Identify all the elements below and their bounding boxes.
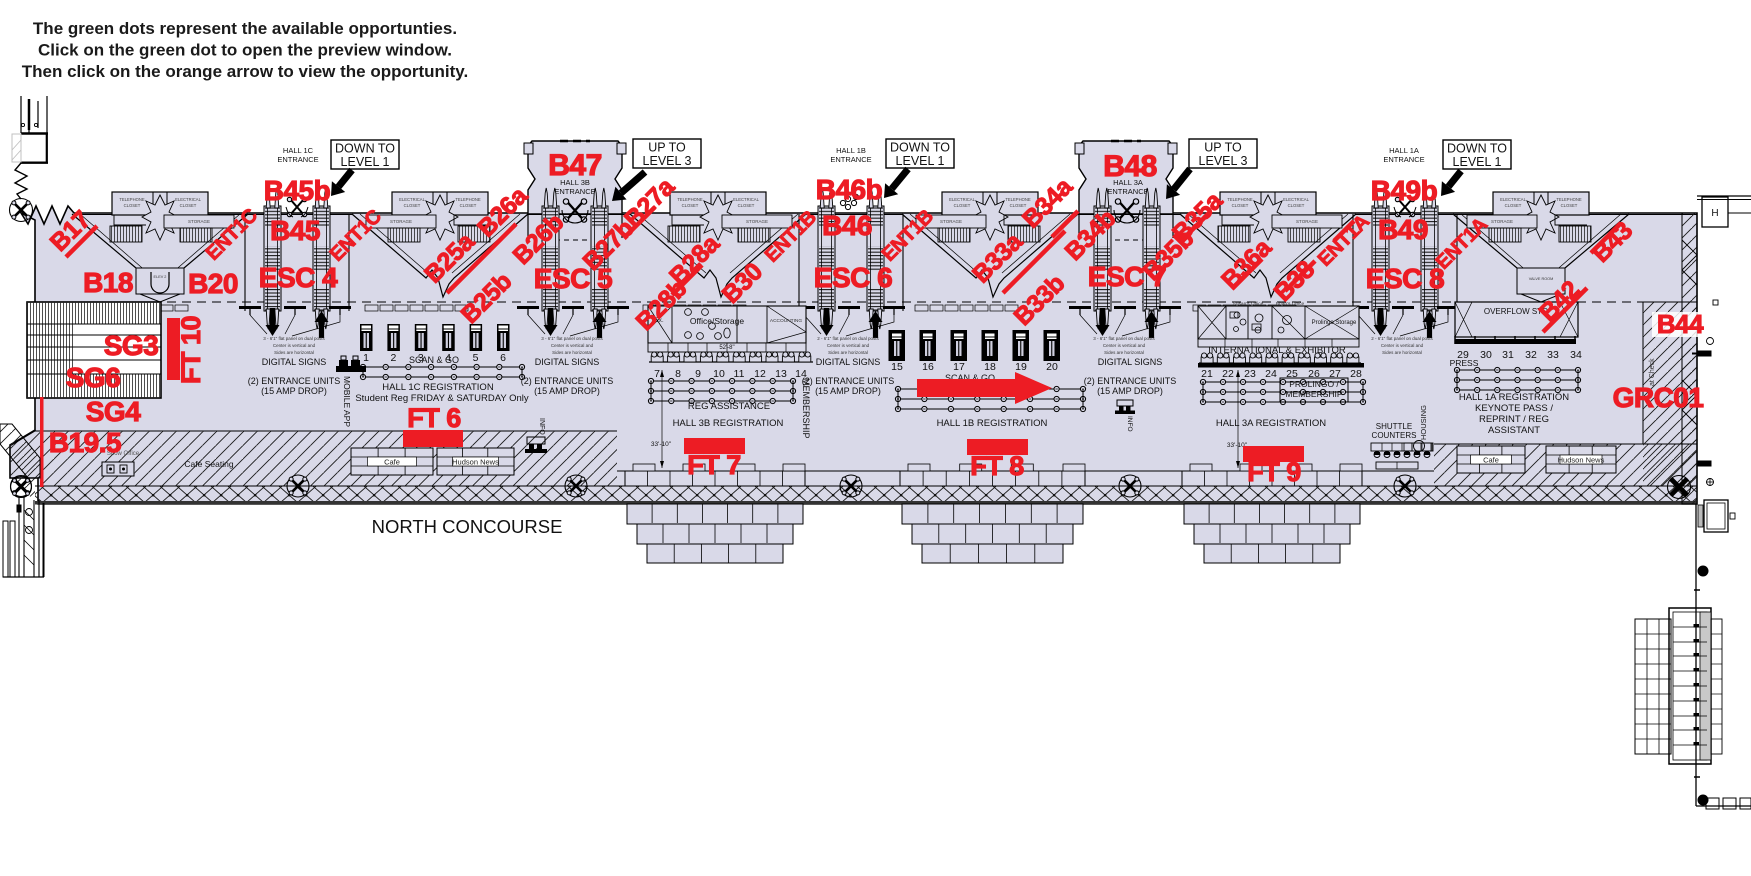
svg-text:ENTRANCE: ENTRANCE (1383, 155, 1424, 164)
svg-text:ELECTRICAL: ELECTRICAL (1500, 197, 1527, 202)
svg-text:19: 19 (1015, 361, 1027, 373)
svg-text:NORTH CONCOURSE: NORTH CONCOURSE (372, 516, 563, 537)
svg-text:Cafe: Cafe (384, 458, 400, 467)
svg-text:Susan's Office: Susan's Office (1233, 301, 1264, 307)
svg-text:Sides are horizontal: Sides are horizontal (828, 350, 868, 355)
svg-text:ESC 6: ESC 6 (814, 262, 892, 293)
svg-text:REG ASSISTANCE: REG ASSISTANCE (688, 401, 770, 412)
svg-text:H: H (1711, 208, 1718, 219)
svg-text:20: 20 (1046, 361, 1058, 373)
svg-text:MOBILE APP: MOBILE APP (342, 376, 352, 427)
svg-text:Center is vertical and: Center is vertical and (827, 343, 870, 348)
svg-text:16: 16 (922, 361, 934, 373)
svg-text:at Check: at Check (1649, 358, 1656, 386)
svg-text:(2) ENTRANCE UNITS: (2) ENTRANCE UNITS (1084, 376, 1177, 386)
svg-text:22: 22 (1222, 368, 1234, 380)
svg-text:Center is vertical and: Center is vertical and (1381, 343, 1424, 348)
svg-text:Sides are horizontal: Sides are horizontal (274, 350, 314, 355)
svg-text:B49b: B49b (1371, 175, 1437, 206)
svg-text:DOWN TO: DOWN TO (890, 141, 950, 155)
svg-text:Office/Storage: Office/Storage (690, 316, 744, 326)
svg-text:KEYNOTE PASS /: KEYNOTE PASS / (1475, 403, 1553, 414)
svg-text:Cafe: Cafe (1483, 456, 1499, 465)
svg-text:STORAGE: STORAGE (746, 219, 768, 224)
svg-text:B48: B48 (1103, 150, 1157, 183)
svg-text:HALL 1A REGISTRATION: HALL 1A REGISTRATION (1459, 392, 1569, 403)
svg-text:LEVEL 1: LEVEL 1 (896, 154, 945, 168)
svg-text:9: 9 (695, 368, 701, 380)
svg-text:FT 7: FT 7 (687, 450, 741, 480)
svg-text:TELEPHONE: TELEPHONE (1005, 197, 1031, 202)
svg-text:3 - 6'1" flat panel on dual po: 3 - 6'1" flat panel on dual posts (1093, 336, 1155, 341)
svg-text:CLOSET: CLOSET (954, 203, 971, 208)
svg-text:PROLINGO /: PROLINGO / (1289, 379, 1339, 389)
svg-text:CLOSET: CLOSET (180, 203, 197, 208)
svg-text:SCAN & GO: SCAN & GO (409, 355, 459, 365)
svg-text:Click on the green dot to open: Click on the green dot to open the previ… (38, 41, 452, 60)
svg-text:HALL 1A: HALL 1A (1389, 146, 1419, 155)
svg-text:HALL 1C REGISTRATION: HALL 1C REGISTRATION (382, 382, 494, 393)
svg-text:ESC 4: ESC 4 (259, 262, 338, 293)
svg-text:TELEPHONE: TELEPHONE (455, 197, 481, 202)
svg-text:B47: B47 (548, 149, 602, 182)
svg-text:Center is vertical and: Center is vertical and (1103, 343, 1146, 348)
svg-text:7: 7 (654, 368, 660, 380)
svg-text:12: 12 (754, 368, 766, 380)
svg-text:2: 2 (390, 352, 396, 364)
svg-text:LEVEL 3: LEVEL 3 (643, 154, 692, 168)
svg-text:LEVEL 3: LEVEL 3 (1199, 154, 1248, 168)
svg-text:TELEPHONE: TELEPHONE (119, 197, 145, 202)
svg-text:CLOSET: CLOSET (1505, 203, 1522, 208)
svg-text:HOUSING: HOUSING (1419, 405, 1428, 440)
svg-text:ELEV 2: ELEV 2 (154, 275, 167, 279)
svg-text:TELEPHONE: TELEPHONE (1227, 197, 1253, 202)
svg-text:FT 9: FT 9 (1247, 457, 1301, 487)
svg-text:ELECTRICAL: ELECTRICAL (949, 197, 976, 202)
svg-text:ASSISTANT: ASSISTANT (1488, 425, 1540, 436)
svg-text:17: 17 (953, 361, 965, 373)
svg-text:ELECTRICAL: ELECTRICAL (1283, 197, 1310, 202)
svg-text:SG4: SG4 (86, 396, 141, 427)
svg-text:ESC 8: ESC 8 (1366, 263, 1444, 294)
svg-text:23: 23 (1244, 368, 1256, 380)
svg-text:B49: B49 (1378, 214, 1428, 245)
svg-text:3 - 6'1" flat panel on dual po: 3 - 6'1" flat panel on dual posts (263, 336, 325, 341)
svg-text:2 - 6'1" flat panel on dual po: 2 - 6'1" flat panel on dual posts (817, 336, 879, 341)
svg-text:ENTRANCE: ENTRANCE (1107, 187, 1148, 196)
svg-text:Hudson News: Hudson News (1558, 456, 1605, 465)
svg-text:(15 AMP DROP): (15 AMP DROP) (534, 386, 600, 396)
svg-text:STORAGE: STORAGE (390, 219, 412, 224)
svg-text:STORAGE: STORAGE (1491, 219, 1513, 224)
svg-text:COUNTERS: COUNTERS (1372, 431, 1417, 440)
svg-text:Sides are horizontal: Sides are horizontal (552, 350, 592, 355)
svg-text:21: 21 (1201, 368, 1213, 380)
svg-text:6: 6 (500, 352, 506, 364)
svg-text:HALL 1B: HALL 1B (836, 146, 866, 155)
svg-text:Center is vertical and: Center is vertical and (551, 343, 594, 348)
svg-text:TELEPHONE: TELEPHONE (1556, 197, 1582, 202)
svg-text:Prolingo Storage: Prolingo Storage (1312, 320, 1357, 326)
svg-text:PRESS: PRESS (1450, 358, 1479, 368)
svg-text:SG3: SG3 (104, 330, 159, 361)
svg-text:33: 33 (1547, 349, 1559, 361)
svg-text:3 - 6'1" flat panel on dual po: 3 - 6'1" flat panel on dual posts (541, 336, 603, 341)
svg-text:13: 13 (775, 368, 787, 380)
svg-text:(2) ENTRANCE UNITS: (2) ENTRANCE UNITS (248, 376, 341, 386)
svg-text:52'-8": 52'-8" (719, 345, 734, 351)
svg-text:DIGITAL SIGNS: DIGITAL SIGNS (535, 357, 600, 367)
svg-text:CLOSET: CLOSET (682, 203, 699, 208)
svg-text:DOWN TO: DOWN TO (1447, 142, 1507, 156)
svg-text:28: 28 (1350, 368, 1362, 380)
svg-text:31: 31 (1502, 349, 1514, 361)
svg-text:GRC01: GRC01 (1613, 382, 1704, 413)
svg-text:DIGITAL SIGNS: DIGITAL SIGNS (262, 357, 327, 367)
svg-text:ENTRANCE: ENTRANCE (277, 155, 318, 164)
svg-text:CLOSET: CLOSET (1288, 203, 1305, 208)
svg-text:MEMBERSHIP: MEMBERSHIP (1285, 389, 1342, 399)
svg-text:B46b: B46b (816, 174, 882, 205)
svg-text:FT 10: FT 10 (176, 316, 206, 384)
svg-text:30: 30 (1480, 349, 1492, 361)
svg-text:UP TO: UP TO (1204, 141, 1242, 155)
svg-text:Center is vertical and: Center is vertical and (273, 343, 316, 348)
svg-text:FT 8: FT 8 (970, 451, 1024, 481)
svg-text:B19.5: B19.5 (49, 427, 121, 458)
svg-text:B46: B46 (822, 210, 872, 241)
svg-text:LEVEL 1: LEVEL 1 (1453, 155, 1502, 169)
svg-text:Cafe Seating: Cafe Seating (184, 459, 233, 469)
svg-text:HALL 3A REGISTRATION: HALL 3A REGISTRATION (1216, 418, 1326, 429)
svg-text:REPRINT / REG: REPRINT / REG (1479, 414, 1549, 425)
svg-text:B18: B18 (83, 267, 133, 298)
svg-text:34: 34 (1570, 349, 1582, 361)
svg-text:(15 AMP DROP): (15 AMP DROP) (261, 386, 327, 396)
svg-text:DIGITAL SIGNS: DIGITAL SIGNS (816, 357, 881, 367)
svg-text:SG6: SG6 (66, 362, 121, 393)
svg-text:MEMBERSHIP: MEMBERSHIP (801, 378, 811, 439)
svg-text:Then click on the orange arrow: Then click on the orange arrow to view t… (22, 62, 468, 81)
svg-text:UP TO: UP TO (648, 141, 686, 155)
svg-text:ACCOUNTING: ACCOUNTING (770, 318, 803, 324)
svg-text:8: 8 (675, 368, 681, 380)
svg-text:15: 15 (891, 361, 903, 373)
svg-text:2 - 6'1" flat panel on dual po: 2 - 6'1" flat panel on dual posts (1371, 336, 1433, 341)
svg-text:B44: B44 (1657, 309, 1704, 339)
svg-text:B20: B20 (188, 268, 238, 299)
svg-text:ENTRANCE: ENTRANCE (830, 155, 871, 164)
svg-text:INFO: INFO (1126, 416, 1133, 432)
svg-text:STORAGE: STORAGE (940, 219, 962, 224)
svg-text:11: 11 (734, 368, 745, 380)
svg-text:24: 24 (1265, 368, 1277, 380)
svg-text:5: 5 (473, 352, 479, 364)
svg-text:(2) ENTRANCE UNITS: (2) ENTRANCE UNITS (521, 376, 614, 386)
svg-text:LEVEL 1: LEVEL 1 (341, 155, 390, 169)
svg-text:(2) ENTRANCE UNITS: (2) ENTRANCE UNITS (802, 376, 895, 386)
svg-text:CLOSET: CLOSET (460, 203, 477, 208)
svg-text:Sides are horizontal: Sides are horizontal (1104, 350, 1144, 355)
svg-text:B45b: B45b (264, 175, 330, 206)
svg-text:STORAGE: STORAGE (1296, 219, 1318, 224)
svg-text:INFO: INFO (538, 418, 545, 435)
svg-text:CLOSET: CLOSET (1232, 203, 1249, 208)
svg-text:CLOSET: CLOSET (124, 203, 141, 208)
svg-text:VALVE ROOM: VALVE ROOM (1529, 277, 1554, 281)
svg-text:CLOSET: CLOSET (1561, 203, 1578, 208)
svg-text:SHUTTLE: SHUTTLE (1376, 422, 1412, 431)
svg-text:32: 32 (1525, 349, 1537, 361)
svg-text:CLOSET: CLOSET (404, 203, 421, 208)
svg-text:Hudson News: Hudson News (452, 458, 499, 467)
svg-text:HALL 3B REGISTRATION: HALL 3B REGISTRATION (673, 418, 784, 429)
svg-text:HALL 1C: HALL 1C (283, 146, 314, 155)
svg-text:ELECTRICAL: ELECTRICAL (175, 197, 202, 202)
svg-text:Sides are horizontal: Sides are horizontal (1382, 350, 1422, 355)
svg-text:(15 AMP DROP): (15 AMP DROP) (815, 386, 881, 396)
svg-text:STORAGE: STORAGE (188, 219, 210, 224)
svg-text:18: 18 (984, 361, 996, 373)
svg-text:ENTRANCE: ENTRANCE (554, 187, 595, 196)
svg-text:(15 AMP DROP): (15 AMP DROP) (1097, 386, 1163, 396)
svg-text:TELEPHONE: TELEPHONE (677, 197, 703, 202)
svg-text:HALL 1B REGISTRATION: HALL 1B REGISTRATION (937, 418, 1048, 429)
svg-text:DOWN TO: DOWN TO (335, 142, 395, 156)
svg-text:10: 10 (713, 368, 725, 380)
svg-text:FT 6: FT 6 (407, 403, 461, 433)
svg-text:B45: B45 (270, 215, 320, 246)
svg-text:The green dots represent the a: The green dots represent the available o… (33, 19, 457, 38)
svg-text:DIGITAL SIGNS: DIGITAL SIGNS (1098, 357, 1163, 367)
svg-text:33'-10": 33'-10" (651, 441, 672, 448)
svg-text:CLOSET: CLOSET (738, 203, 755, 208)
svg-text:ELECTRICAL: ELECTRICAL (399, 197, 426, 202)
svg-text:ELECTRICAL: ELECTRICAL (733, 197, 760, 202)
svg-text:1: 1 (363, 352, 369, 364)
